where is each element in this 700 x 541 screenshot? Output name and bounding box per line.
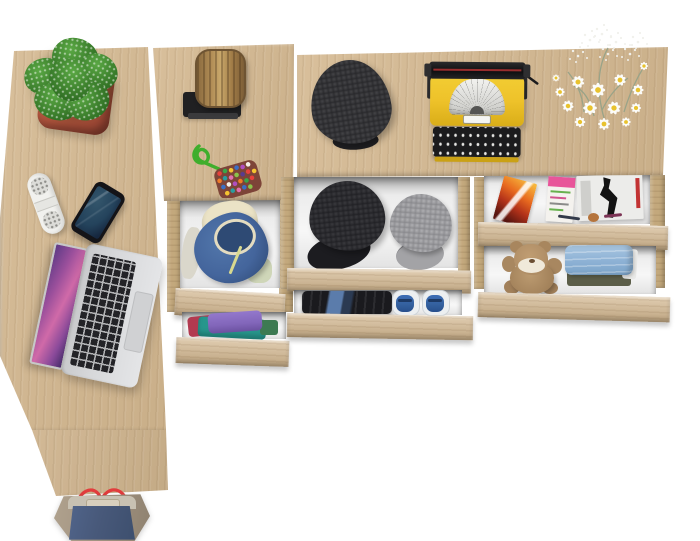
- blue-hooded-jacket: [182, 201, 278, 287]
- scatter-egg: [588, 213, 599, 222]
- keychain-bead-pouch: [212, 158, 263, 198]
- magazine-text-line: [550, 202, 569, 205]
- fashion-silhouette: [594, 177, 623, 219]
- teddy-bear: [502, 246, 564, 298]
- sneaker-lace: [398, 299, 412, 302]
- platen-knob: [424, 64, 431, 77]
- keychain-cord: [194, 146, 219, 169]
- flat-cap-crown: [304, 54, 396, 149]
- purple-shirt: [207, 310, 262, 334]
- magazine-text-line: [550, 190, 570, 193]
- sneaker-upper: [426, 295, 444, 312]
- typewriter-label: [463, 115, 491, 124]
- gray-cap-crown: [388, 192, 454, 254]
- magazine-text-line: [550, 196, 566, 199]
- bag-front-panel: [69, 506, 135, 541]
- speaker-clasp: [34, 196, 58, 213]
- teddy-nose: [529, 259, 535, 263]
- sideboard-right-drawer2-front: [478, 292, 671, 322]
- speaker-grille: [40, 208, 63, 231]
- magazine-header: [548, 176, 576, 188]
- typewriter-keyboard: [433, 127, 521, 158]
- platen-red-line: [433, 69, 521, 71]
- sneaker-upper: [396, 295, 414, 312]
- speaker-grille: [28, 175, 51, 198]
- black-cap: [305, 181, 389, 271]
- magazine-gray-streak: [580, 181, 591, 216]
- sideboard-left-drawer2-front: [287, 313, 473, 340]
- yellow-typewriter: [427, 59, 528, 164]
- magazine-red-strip: [635, 178, 640, 208]
- narrow-chest-drawer2-front: [176, 337, 290, 367]
- type-basket-center: [470, 106, 484, 114]
- wood-stump-decor: [195, 49, 246, 108]
- babys-breath: [569, 24, 648, 63]
- typewriter-platen: [429, 62, 525, 80]
- folded-jeans: [565, 245, 641, 287]
- gray-cap: [388, 194, 454, 270]
- stump-base-lip: [188, 113, 238, 119]
- gray-flat-cap: [304, 54, 397, 155]
- magazine-text-line: [549, 208, 563, 211]
- folded-dark-clothes: [302, 291, 392, 314]
- typewriter-base: [435, 157, 519, 163]
- daisy-bouquet: [544, 20, 670, 140]
- potted-plant: [24, 38, 118, 128]
- green-shirt: [260, 320, 278, 335]
- platen-knob: [523, 64, 530, 77]
- folded-shirts: [186, 311, 280, 339]
- beaded-keychain: [189, 138, 273, 198]
- blue-sneaker: [422, 290, 450, 316]
- jeans-stack: [565, 245, 633, 275]
- tote-bag: [54, 489, 150, 541]
- blue-sneaker: [392, 290, 420, 316]
- sneaker-lace: [428, 299, 442, 302]
- product-photo-stage: [0, 0, 700, 541]
